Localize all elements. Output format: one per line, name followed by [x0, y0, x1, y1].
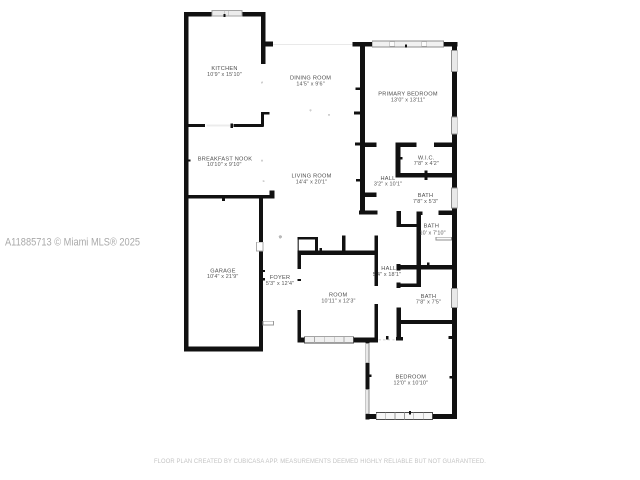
svg-text:12'0" x 10'10": 12'0" x 10'10"	[393, 381, 428, 387]
svg-text:A11885713 © Miami MLS® 2025: A11885713 © Miami MLS® 2025	[5, 237, 140, 249]
svg-text:14'4" x 20'1": 14'4" x 20'1"	[296, 180, 328, 186]
svg-text:10'9" x 15'10": 10'9" x 15'10"	[207, 72, 242, 78]
svg-text:7'8" x 5'3": 7'8" x 5'3"	[413, 199, 438, 205]
svg-text:FLOOR PLAN CREATED BY CUBICASA: FLOOR PLAN CREATED BY CUBICASA APP. MEAS…	[154, 458, 486, 465]
svg-text:3'2" x 10'1": 3'2" x 10'1"	[374, 181, 402, 187]
svg-text:KITCHEN: KITCHEN	[211, 66, 237, 72]
svg-text:LIVING ROOM: LIVING ROOM	[291, 173, 331, 179]
svg-text:7'8" x 7'5": 7'8" x 7'5"	[416, 300, 441, 306]
svg-text:PRIMARY BEDROOM: PRIMARY BEDROOM	[378, 92, 438, 98]
svg-text:5'3" x 12'4": 5'3" x 12'4"	[266, 281, 294, 287]
svg-text:10'4" x 21'9": 10'4" x 21'9"	[207, 274, 239, 280]
svg-text:BATH: BATH	[424, 224, 440, 230]
svg-text:10' x 7'10": 10' x 7'10"	[419, 231, 445, 237]
svg-text:14'5" x 9'6": 14'5" x 9'6"	[296, 82, 324, 88]
svg-text:10'10" x 9'10": 10'10" x 9'10"	[207, 162, 242, 168]
svg-text:10'11" x 12'3": 10'11" x 12'3"	[321, 299, 355, 305]
svg-text:13'0" x 13'11": 13'0" x 13'11"	[391, 98, 425, 104]
svg-text:BEDROOM: BEDROOM	[395, 374, 426, 380]
svg-text:7'8" x 4'2": 7'8" x 4'2"	[414, 161, 439, 167]
svg-text:DINING ROOM: DINING ROOM	[290, 76, 331, 82]
